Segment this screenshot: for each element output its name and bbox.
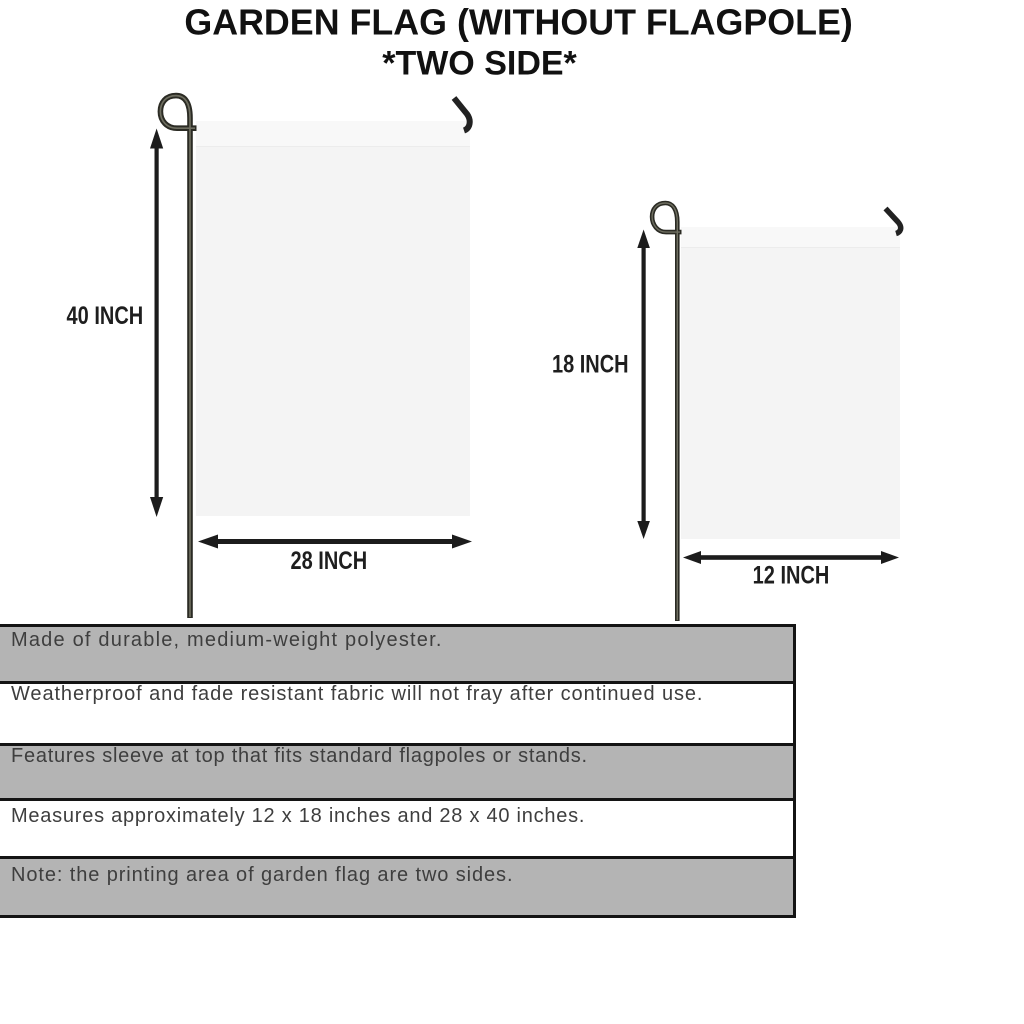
svg-text:40 INCH: 40 INCH bbox=[67, 302, 144, 330]
svg-text:12 INCH: 12 INCH bbox=[753, 562, 830, 590]
svg-text:GARDEN FLAG (WITHOUT FLAGPOLE): GARDEN FLAG (WITHOUT FLAGPOLE) bbox=[184, 1, 853, 42]
svg-text:28 INCH: 28 INCH bbox=[290, 547, 367, 575]
svg-text:18 INCH: 18 INCH bbox=[552, 350, 629, 378]
svg-text:*TWO SIDE*: *TWO SIDE* bbox=[382, 44, 577, 82]
